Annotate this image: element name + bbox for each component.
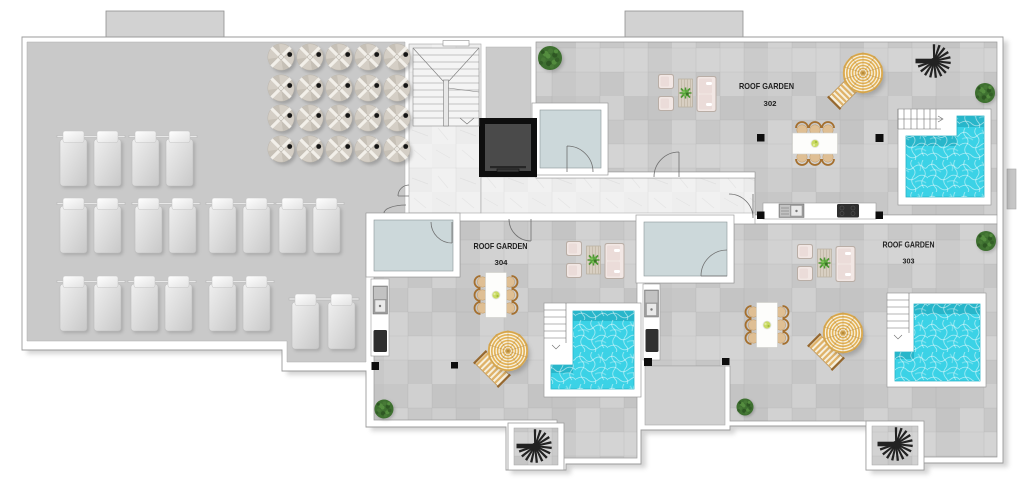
svg-text:302: 302 bbox=[764, 99, 777, 108]
svg-text:ROOF GARDEN: ROOF GARDEN bbox=[474, 242, 528, 251]
svg-text:ROOF GARDEN: ROOF GARDEN bbox=[883, 241, 935, 250]
svg-text:ROOF GARDEN: ROOF GARDEN bbox=[739, 82, 794, 91]
svg-text:304: 304 bbox=[495, 258, 509, 267]
svg-text:303: 303 bbox=[903, 257, 915, 266]
